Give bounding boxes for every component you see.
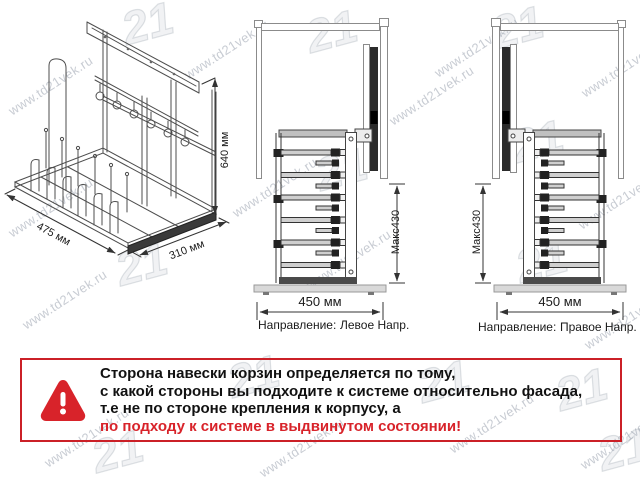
dim-height-label: 640 мм xyxy=(219,132,231,169)
front-view-right-direction: 450 мм Макс430 Направление: Правое Напр. xyxy=(471,19,637,335)
warning-triangle-icon xyxy=(39,377,87,423)
warning-line-3: т.е не по стороне крепления к корпусу, а xyxy=(100,400,582,418)
warning-line-highlight: по подходу к системе в выдвинутом состоя… xyxy=(100,418,582,436)
direction-caption-value: Левое Напр. xyxy=(340,318,409,332)
direction-caption-label: Направление: xyxy=(258,318,336,332)
warning-box: Сторона навески корзин определяется по т… xyxy=(20,358,622,442)
opening-width-label: 450 мм xyxy=(538,294,581,309)
direction-caption-label: Направление: xyxy=(478,320,556,334)
direction-caption-value: Правое Напр. xyxy=(560,320,637,334)
dim-width-label: 475 мм xyxy=(35,220,73,248)
max-height-label: Макс430 xyxy=(471,210,483,254)
max-height-label: Макс430 xyxy=(390,210,402,254)
front-view-left-direction: 450 мм Макс430 Направление: Левое Напр. xyxy=(254,19,409,333)
page: www.td21vek.ruwww.td21vek.ruwww.td21vek.… xyxy=(0,0,640,480)
warning-text: Сторона навески корзин определяется по т… xyxy=(100,365,582,435)
warning-line-2: с какой стороны вы подходите к системе о… xyxy=(100,383,582,401)
opening-width-label: 450 мм xyxy=(298,294,341,309)
warning-line-1: Сторона навески корзин определяется по т… xyxy=(100,365,582,383)
